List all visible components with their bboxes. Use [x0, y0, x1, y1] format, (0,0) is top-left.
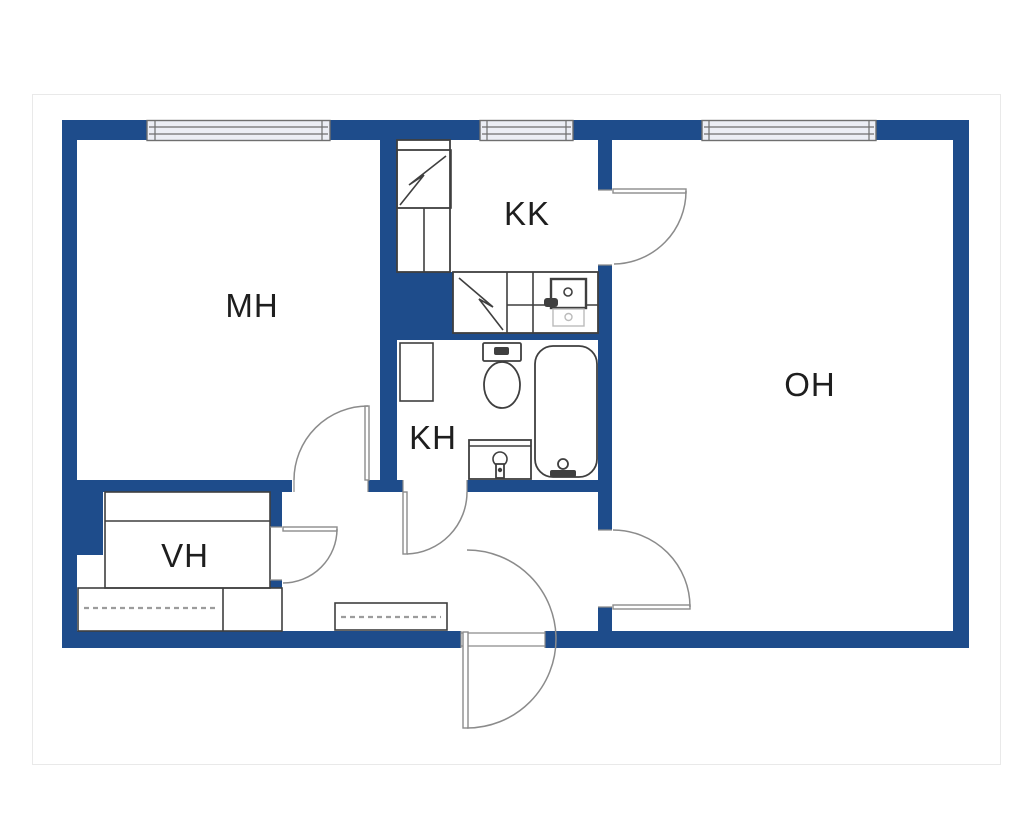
wall-vh-hall: [270, 580, 282, 588]
wall-mh-hall: [368, 480, 403, 492]
wall-hall-oh: [598, 607, 612, 631]
exterior-wall-right: [953, 120, 969, 648]
toilet: [483, 343, 521, 408]
duct-block: [397, 272, 453, 335]
room-label-kk: KK: [504, 195, 550, 232]
vh-wardrobe: [78, 588, 282, 631]
tall-cabinet-unit: [397, 140, 451, 272]
window-kk: [480, 121, 573, 141]
room-label-mh: MH: [225, 287, 278, 324]
door-hall-oh: [613, 530, 690, 609]
bathroom-sink: [469, 440, 531, 479]
door-vh: [283, 527, 337, 583]
exterior-wall-top: [573, 120, 702, 140]
room-label-kh: KH: [409, 419, 457, 456]
room-label-vh: VH: [161, 537, 209, 574]
door-kk-oh: [613, 189, 686, 264]
bathroom-fixtures: [400, 343, 597, 479]
bathroom-cabinet: [400, 343, 433, 401]
windows: [147, 121, 876, 141]
kitchen-faucet: [544, 298, 558, 307]
floorplan-page: MH KK KH VH OH: [0, 0, 1024, 829]
room-label-oh: OH: [784, 366, 836, 403]
floorplan-canvas: MH KK KH VH OH: [0, 0, 1024, 829]
wall-kk-oh: [598, 140, 612, 190]
wall-kh-hall: [467, 480, 612, 492]
kitchen-counter: [453, 272, 598, 333]
exterior-wall-bottom: [62, 631, 461, 648]
door-kh: [403, 492, 467, 554]
door-mh: [294, 406, 369, 480]
wall-mh-kk: [380, 140, 397, 480]
storage-fixtures: [78, 492, 447, 631]
window-oh: [702, 121, 876, 141]
wall-vh-hall: [270, 492, 282, 527]
exterior-wall-bottom: [545, 631, 969, 648]
wall-block-vh: [62, 480, 103, 555]
hall-wardrobe: [335, 603, 447, 630]
bathtub: [535, 346, 597, 477]
exterior-wall-top: [330, 120, 480, 140]
window-mh: [147, 121, 330, 141]
entrance-door: [463, 550, 556, 728]
exterior-wall-left: [62, 120, 77, 648]
